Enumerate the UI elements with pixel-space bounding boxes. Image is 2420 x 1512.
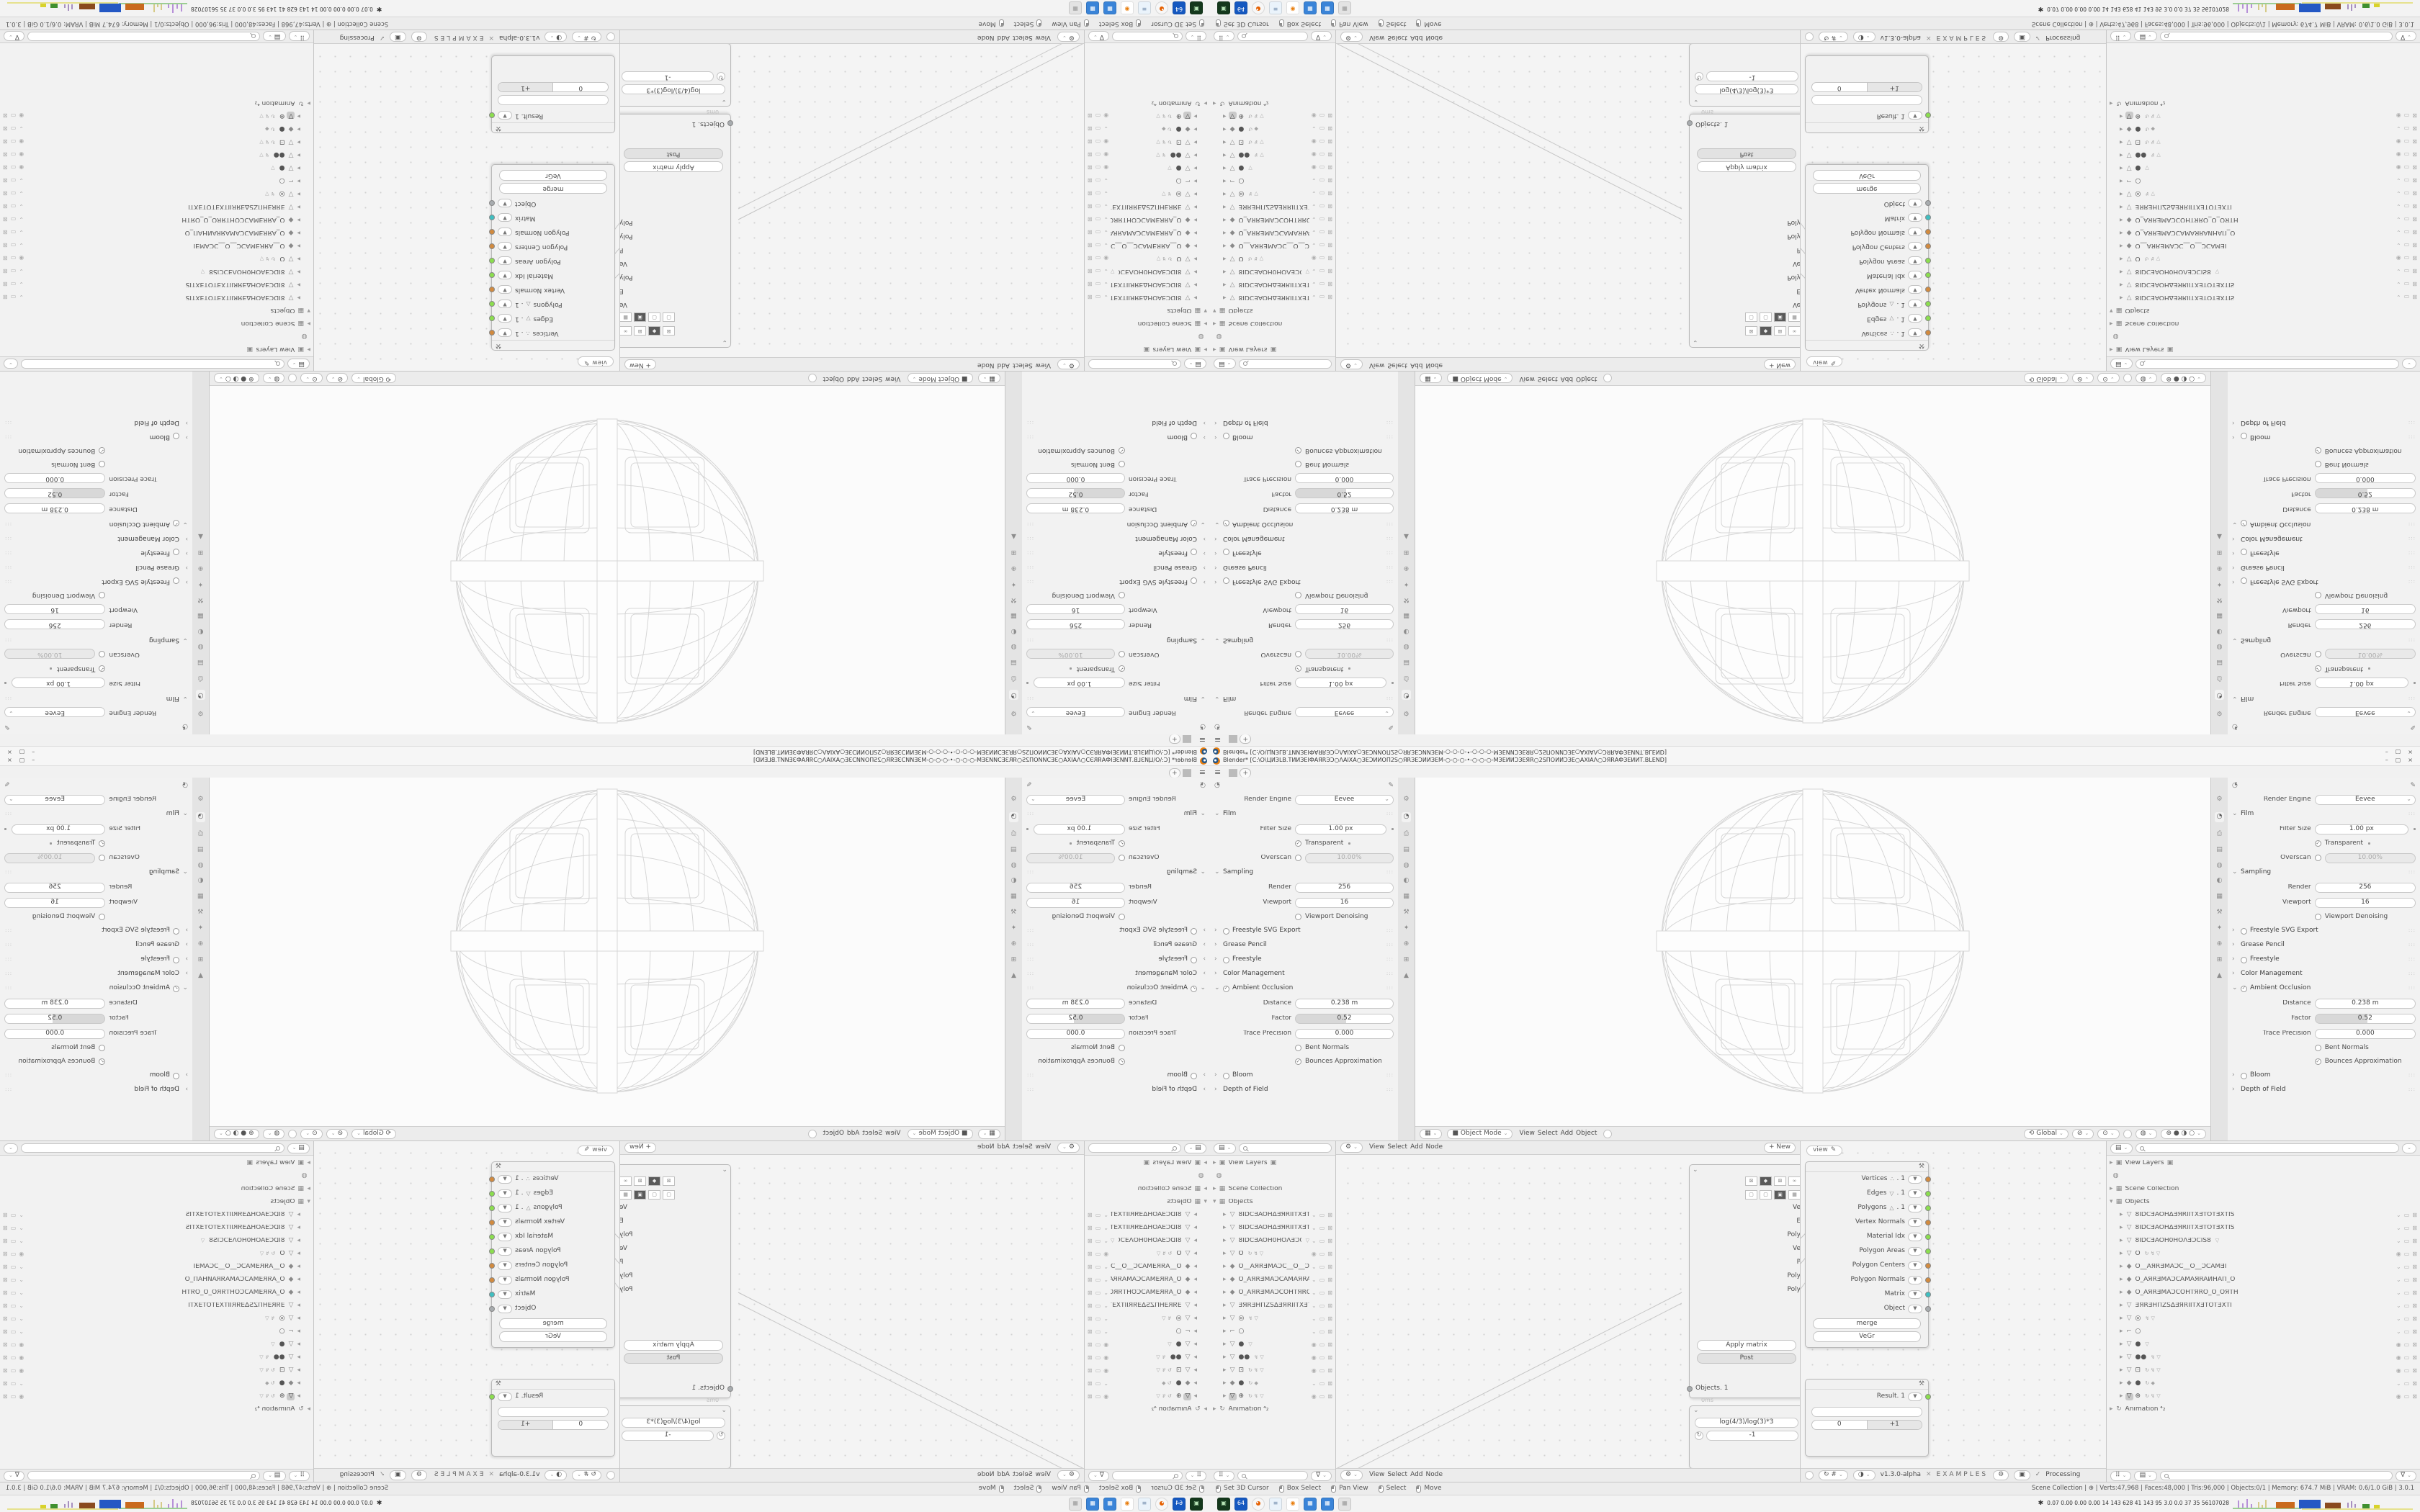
expand-arrow-icon[interactable]: ▸ xyxy=(297,1290,300,1297)
outliner-row[interactable]: ▸▽8IDCƎAOHΔƎЯRIITXƎTOTƎXTIS⌄▭⊠ xyxy=(0,290,313,303)
monitor-toggle-icon[interactable]: ▭ xyxy=(11,1342,17,1349)
addon-settings-button[interactable]: ⚙ xyxy=(1993,32,2009,42)
pin-icon[interactable]: ✎ xyxy=(1388,783,1394,790)
field-filter-size[interactable]: 1.00 px xyxy=(1034,678,1125,688)
properties-tab-object-icon[interactable]: ▦ xyxy=(1403,611,1410,618)
properties-tab-physics-icon[interactable]: ⊕ xyxy=(2217,564,2223,571)
render-toggle-icon[interactable]: ⊠ xyxy=(3,1381,8,1387)
outliner-row[interactable]: ▸▽8IDCƎAOHΔƎЯRIITXƎTOTƎXTIS⌄▭⊠ xyxy=(2107,1222,2420,1235)
outliner-row[interactable]: ▸▽●▽◉▭⊠ xyxy=(1085,161,1210,174)
objects-input-socket[interactable] xyxy=(1687,120,1693,126)
formula-node[interactable]: ⌄ log(4/3)/log(3)*3 ↻ -1 xyxy=(1689,1405,1801,1469)
editor-type-button[interactable]: ▦⌄ xyxy=(978,374,1000,384)
addon-settings-button[interactable]: ⚙ xyxy=(411,1470,427,1480)
output-socket[interactable] xyxy=(1925,229,1931,235)
section-header-grease-pencil[interactable]: ›Grease Pencil::: xyxy=(1214,559,1394,574)
output-socket[interactable] xyxy=(1925,272,1931,278)
monitor-toggle-icon[interactable]: ▭ xyxy=(2404,1290,2410,1297)
checkbox-viewport-denoising[interactable] xyxy=(1295,914,1301,920)
new-tab-button[interactable]: + xyxy=(1169,768,1180,778)
outliner-row[interactable]: ▸▽8IDCƎAOH0HOΛƎƆCIS8▽⌄▭⊠ xyxy=(1085,1235,1210,1248)
outliner-row[interactable]: ▸▽8IDCƎAOHΔƎЯRIITXƎTOTƎXTIS⌄▭⊠ xyxy=(2107,290,2420,303)
render-toggle-icon[interactable]: ⊠ xyxy=(1088,255,1093,261)
checkbox-bounces-approximation[interactable] xyxy=(99,1058,105,1065)
filter-button[interactable]: ∇⌄ xyxy=(1088,32,1109,42)
expand-arrow-icon[interactable]: ▸ xyxy=(1223,1367,1227,1374)
monitor-toggle-icon[interactable]: ▭ xyxy=(11,1303,17,1310)
expand-arrow-icon[interactable]: ▸ xyxy=(1193,1367,1197,1374)
minimize-button[interactable]: – xyxy=(32,748,35,755)
socket-dropdown[interactable]: ▼ xyxy=(1908,1218,1922,1227)
snap-button[interactable]: ⊘⌄ xyxy=(2072,1129,2094,1139)
outliner-row[interactable]: ▸▽⊕↻ ↯ ▽◉▭⊠ xyxy=(2107,109,2420,122)
expand-arrow-icon[interactable]: ▸ xyxy=(1193,150,1197,158)
visibility-toggle-icon[interactable]: ⌄ xyxy=(1312,1277,1317,1284)
section-header-freestyle-svg-export[interactable]: ›Freestyle SVG Export::: xyxy=(1214,924,1394,938)
visibility-toggle-icon[interactable]: ⌄ xyxy=(1103,1264,1108,1271)
footer-shading-button[interactable]: ◑⌄ xyxy=(1853,32,1875,42)
menu-view[interactable]: View xyxy=(1034,34,1052,41)
holdout-toggle[interactable]: ⊠ xyxy=(1774,1176,1786,1186)
render-toggle-icon[interactable]: ⊠ xyxy=(2412,1303,2417,1310)
render-toggle-icon[interactable]: ⊠ xyxy=(2412,125,2417,132)
section-toggle[interactable] xyxy=(1223,549,1229,556)
render-toggle-icon[interactable]: ⊠ xyxy=(1088,1342,1093,1349)
expand-arrow-icon[interactable]: ▾ xyxy=(307,1199,310,1206)
visibility-toggle-icon[interactable]: ⌄ xyxy=(1312,1225,1317,1232)
output-socket[interactable] xyxy=(489,215,495,220)
output-socket[interactable] xyxy=(1925,1292,1931,1297)
section-toggle[interactable] xyxy=(1191,986,1197,992)
step-zero-button[interactable]: 0 xyxy=(554,83,609,91)
refresh-icon[interactable]: ↻ xyxy=(1695,72,1703,81)
section-header-freestyle-svg-export[interactable]: ›Freestyle SVG Export::: xyxy=(1026,924,1206,938)
outliner-search-input[interactable] xyxy=(2136,1143,2399,1153)
monitor-toggle-icon[interactable]: ▭ xyxy=(1095,1381,1101,1387)
render-toggle-icon[interactable]: ⊠ xyxy=(1088,190,1093,197)
properties-tab-modifier-icon[interactable]: ⚒ xyxy=(197,595,203,603)
field-render-engine[interactable]: Eevee xyxy=(2315,795,2416,805)
gizmo-toggle[interactable] xyxy=(2123,374,2132,383)
render-toggle-icon[interactable]: ⊠ xyxy=(1088,164,1093,171)
field-render-engine[interactable]: Eevee xyxy=(4,708,105,718)
node-editor-right[interactable]: view✎ ⚒ Vertices∴. 1▼Edges▽. 1▼Polygons△… xyxy=(1801,1141,2107,1482)
render-toggle-icon[interactable]: ⊠ xyxy=(2412,1225,2417,1232)
socket-dropdown[interactable]: ▼ xyxy=(1908,314,1922,323)
geometry-output-node[interactable]: ⚒ Vertices∴. 1▼Edges▽. 1▼Polygons△. 1▼Ve… xyxy=(1805,164,1929,351)
render-toggle-icon[interactable]: ⊠ xyxy=(1327,125,1332,132)
outliner-row[interactable]: ▸◆●↻ ◆⌄▭⊠ xyxy=(1085,1377,1210,1390)
expand-arrow-icon[interactable]: ▸ xyxy=(2120,1393,2123,1400)
visibility-toggle-icon[interactable]: ⌄ xyxy=(1103,1303,1108,1310)
monitor-toggle-icon[interactable]: ▭ xyxy=(1095,151,1101,158)
expand-arrow-icon[interactable]: ▸ xyxy=(1193,176,1197,184)
expand-arrow-icon[interactable]: ▸ xyxy=(1193,254,1197,261)
menu-select[interactable]: Select xyxy=(1011,1143,1034,1151)
render-toggle-icon[interactable]: ⊠ xyxy=(1088,1251,1093,1258)
viewport-extra-button[interactable] xyxy=(808,1130,817,1138)
outliner-row[interactable]: ▸▽8IDCƎAOHΔƎЯRIITXƎTOTƎXTIS⌄▭⊠ xyxy=(1085,1222,1210,1235)
outliner-row[interactable]: ▸◆●↻ ◆⌄▭⊠ xyxy=(1210,1377,1335,1390)
render-toggle-icon[interactable]: ⊠ xyxy=(2412,1238,2417,1245)
menu-add[interactable]: Add xyxy=(1409,34,1424,41)
visibility-toggle-icon[interactable]: ⌄ xyxy=(1312,177,1317,184)
properties-tab-constraints-icon[interactable]: ⊞ xyxy=(198,548,204,555)
objects-input-socket[interactable] xyxy=(727,1386,733,1392)
mode-c-button[interactable]: ▣ xyxy=(1774,312,1786,322)
outliner-row[interactable]: ▸▽8IDCƎAOHΔƎЯRIITXƎTOTƎXTIS⌄▭⊠ xyxy=(2107,277,2420,290)
formula-field[interactable]: log(4/3)/log(3)*3 xyxy=(1695,1418,1798,1428)
visibility-toggle-icon[interactable]: ⌄ xyxy=(1103,1316,1108,1323)
expand-arrow-icon[interactable]: ▸ xyxy=(2120,293,2123,300)
socket-dropdown[interactable]: ▼ xyxy=(498,271,512,279)
menu-node[interactable]: Node xyxy=(976,361,996,369)
expand-arrow-icon[interactable]: ▸ xyxy=(2120,1290,2123,1297)
outliner-row[interactable]: ▸◆O__AЯRƎMAƆC__O__ƆCAMƎI⌄▭⊠ xyxy=(1210,238,1335,251)
monitor-toggle-icon[interactable]: ▭ xyxy=(1095,112,1101,119)
expand-arrow-icon[interactable]: ▸ xyxy=(2120,1238,2123,1245)
expand-arrow-icon[interactable]: ▸ xyxy=(1223,1277,1227,1284)
render-toggle-icon[interactable]: ⊠ xyxy=(3,229,8,235)
render-toggle-icon[interactable]: ⊠ xyxy=(1088,125,1093,132)
outliner-row[interactable]: ▸⌐○⌄▭⊠ xyxy=(0,1326,313,1338)
expand-arrow-icon[interactable]: ▸ xyxy=(1204,1160,1207,1167)
outliner-row[interactable]: ▸▽●▽◉▭⊠ xyxy=(2107,161,2420,174)
outliner-row[interactable]: ▾▦Objects xyxy=(0,1196,313,1209)
outliner-row[interactable]: ▸⌐○⌄▭⊠ xyxy=(1085,1326,1210,1338)
visibility-toggle-icon[interactable]: ⌄ xyxy=(19,268,24,274)
visibility-toggle-icon[interactable]: ⌄ xyxy=(1103,203,1108,210)
field-distance[interactable]: 0.238 m xyxy=(1295,999,1394,1009)
notepad-icon[interactable]: ≡ xyxy=(1138,2,1151,15)
expand-arrow-icon[interactable]: ▸ xyxy=(297,1315,300,1323)
render-toggle-icon[interactable]: ⊠ xyxy=(1327,229,1332,235)
outliner-row[interactable]: ▸▽O↻ ↯ ▽◉▭⊠ xyxy=(2107,1248,2420,1261)
monitor-toggle-icon[interactable]: ▭ xyxy=(1095,203,1101,210)
node-editor-right[interactable]: view✎ ⚒ Vertices∴. 1▼Edges▽. 1▼Polygons△… xyxy=(1801,30,2107,371)
visibility-toggle-icon[interactable]: ◉ xyxy=(19,1394,24,1400)
outliner-row[interactable]: ▸▽ƎЯRƎHПZSΔƎЯRIITXƎTOTƎXTI⌄▭⊠ xyxy=(1210,1300,1335,1313)
visibility-toggle-icon[interactable]: ◉ xyxy=(19,1368,24,1374)
new-node-tree-button[interactable]: + New xyxy=(624,359,656,369)
section-header-color-management[interactable]: ›Color Management::: xyxy=(1214,531,1394,545)
render-toggle-icon[interactable]: ⊠ xyxy=(1327,1277,1332,1284)
visibility-toggle-icon[interactable]: ⌄ xyxy=(2396,1381,2401,1387)
section-header-ambient-occlusion[interactable]: ⌄Ambient Occlusion::: xyxy=(1214,981,1394,996)
monitor-toggle-icon[interactable]: ▭ xyxy=(1319,203,1325,210)
outliner-row[interactable]: ▸▽ƎЯRƎHПZSΔƎЯRIITXƎTOTƎXTI⌄▭⊠ xyxy=(1085,199,1210,212)
section-header-freestyle[interactable]: ›Freestyle::: xyxy=(2232,953,2416,967)
visibility-toggle-icon[interactable]: ◉ xyxy=(2396,151,2401,158)
outliner-row[interactable]: ▸▽O↻ ↯ ▽◉▭⊠ xyxy=(0,1248,313,1261)
properties-tab-constraints-icon[interactable]: ⊞ xyxy=(2217,957,2223,964)
properties-tab-object-icon[interactable]: ▦ xyxy=(2216,894,2223,901)
render-toggle-icon[interactable]: ⊠ xyxy=(1327,1355,1332,1362)
monitor-toggle-icon[interactable]: ▭ xyxy=(2404,151,2410,158)
checkbox-bent-normals[interactable] xyxy=(2315,1045,2321,1051)
properties-tab-particles-icon[interactable]: ✦ xyxy=(1404,580,1410,587)
field-render-engine[interactable]: Eevee xyxy=(1026,795,1125,805)
output-socket[interactable] xyxy=(1925,1248,1931,1254)
monitor-toggle-icon[interactable]: ▭ xyxy=(11,138,17,145)
hamburger-menu-icon[interactable]: ≡ xyxy=(1214,734,1221,744)
menu-object[interactable]: Object xyxy=(822,375,846,382)
calculator2-icon[interactable]: ▦ xyxy=(1086,2,1099,15)
render-toggle-icon[interactable]: ⊠ xyxy=(1088,1329,1093,1336)
objects-input-socket[interactable] xyxy=(727,120,733,126)
view-panel-tab[interactable]: view✎ xyxy=(578,1146,614,1156)
outliner-row[interactable]: ▸▽⊕↻ ↯ ▽◉▭⊠ xyxy=(0,109,313,122)
outliner-row[interactable]: ◍ xyxy=(1085,1170,1210,1183)
outliner-row[interactable]: ▸▽ƎЯRƎHПZSΔƎЯRIITXƎTOTƎXTI⌄▭⊠ xyxy=(1210,199,1335,212)
menu-node[interactable]: Node xyxy=(1425,1143,1445,1151)
field-render-engine[interactable]: Eevee xyxy=(1295,795,1394,805)
filter-display-button[interactable]: ⠿⌄ xyxy=(1214,32,1234,42)
render-toggle-icon[interactable]: ⊠ xyxy=(2412,1394,2417,1400)
render-toggle-icon[interactable]: ⊠ xyxy=(3,1290,8,1297)
outliner-row[interactable]: ▸▽8IDCƎAOHΔƎЯRIITXƎTOTƎXTIS⌄▭⊠ xyxy=(1210,1222,1335,1235)
expand-arrow-icon[interactable]: ▸ xyxy=(307,319,310,326)
render-toggle-icon[interactable]: ⊠ xyxy=(2412,190,2417,197)
node-editor-left[interactable]: ⚙⌄ ViewSelectAddNode + New ⌄ ⊠◆ ⊠∞ ▢▢▣▦ … xyxy=(619,1141,1084,1482)
properties-tab-physics-icon[interactable]: ⊕ xyxy=(1404,564,1410,571)
section-header-film[interactable]: ⌄Film::: xyxy=(1214,807,1394,822)
monitor-toggle-icon[interactable]: ▭ xyxy=(11,1316,17,1323)
expand-arrow-icon[interactable]: ▸ xyxy=(1223,202,1227,210)
expand-arrow-icon[interactable]: ▸ xyxy=(2110,1186,2113,1193)
output-socket[interactable] xyxy=(1925,1220,1931,1225)
field-factor[interactable]: 0.52 xyxy=(2315,1014,2416,1024)
orientation-dropdown[interactable]: ⟲ Global⌄ xyxy=(351,374,396,384)
workspace-tab[interactable] xyxy=(1186,735,1187,743)
properties-tab-physics-icon[interactable]: ⊕ xyxy=(1404,941,1410,948)
exclude-toggle[interactable]: ⊠ xyxy=(1745,326,1757,336)
socket-dropdown[interactable]: ▼ xyxy=(1908,285,1922,294)
expand-arrow-icon[interactable]: ▸ xyxy=(1213,99,1216,106)
field-render[interactable]: 256 xyxy=(4,883,105,893)
output-socket[interactable] xyxy=(1925,200,1931,206)
visibility-toggle-icon[interactable]: ⌄ xyxy=(1103,125,1108,132)
menu-add[interactable]: Add xyxy=(995,34,1010,41)
monitor-toggle-icon[interactable]: ▭ xyxy=(11,229,17,235)
properties-tab-render-icon[interactable]: ◔ xyxy=(1009,812,1019,822)
visibility-toggle-icon[interactable]: ⌄ xyxy=(2396,1264,2401,1271)
section-toggle[interactable] xyxy=(2241,549,2247,556)
field-trace-precision[interactable]: 0.000 xyxy=(2315,474,2416,484)
render-toggle-icon[interactable]: ⊠ xyxy=(1327,242,1332,248)
section-toggle[interactable] xyxy=(173,957,179,963)
visibility-toggle-icon[interactable]: ⌄ xyxy=(2396,1329,2401,1336)
expand-arrow-icon[interactable]: ▸ xyxy=(1193,138,1197,145)
visibility-toggle-icon[interactable]: ◉ xyxy=(1103,1355,1108,1362)
monitor-toggle-icon[interactable]: ▭ xyxy=(11,242,17,248)
menu-add[interactable]: Add xyxy=(846,375,861,382)
output-socket[interactable] xyxy=(1925,1191,1931,1197)
visibility-toggle-icon[interactable]: ⌄ xyxy=(19,1264,24,1271)
visibility-toggle-icon[interactable]: ⌄ xyxy=(2396,268,2401,274)
editor-type-button[interactable]: ⚙⌄ xyxy=(1057,359,1080,369)
monitor-toggle-icon[interactable]: ▭ xyxy=(1095,190,1101,197)
outliner-row[interactable]: ▸▽●▽◉▭⊠ xyxy=(2107,1338,2420,1351)
mode-a-button[interactable]: ▢ xyxy=(663,1190,675,1200)
outliner-search-input[interactable] xyxy=(1112,32,1183,41)
monitor-toggle-icon[interactable]: ▭ xyxy=(11,1264,17,1271)
section-header-depth-of-field[interactable]: ›Depth of Field::: xyxy=(1026,415,1206,429)
render-toggle-icon[interactable]: ⊠ xyxy=(1327,138,1332,145)
refresh-icon[interactable]: ↻ xyxy=(717,72,725,81)
output-socket[interactable] xyxy=(1925,1205,1931,1211)
visibility-toggle-icon[interactable]: ⌄ xyxy=(1103,1290,1108,1297)
section-header-freestyle[interactable]: ›Freestyle::: xyxy=(4,953,188,967)
field-trace-precision[interactable]: 0.000 xyxy=(1295,474,1394,484)
outliner-row[interactable]: ▸▽O↻ ↯ ▽◉▭⊠ xyxy=(1085,251,1210,264)
expand-arrow-icon[interactable]: ▸ xyxy=(2120,1264,2123,1271)
checkbox-viewport-denoising[interactable] xyxy=(1119,914,1125,920)
socket-dropdown[interactable]: ▼ xyxy=(1908,1204,1922,1212)
render-toggle-icon[interactable]: ⊠ xyxy=(3,216,8,222)
outliner-row[interactable]: ▸↻Animation ⁴₂ xyxy=(0,96,313,109)
render-toggle-icon[interactable]: ⊠ xyxy=(3,1342,8,1349)
socket-dropdown[interactable]: ▼ xyxy=(1908,1233,1922,1241)
outliner-row[interactable]: ▸▣View Layers▣ xyxy=(2107,1157,2420,1170)
exclude-toggle[interactable]: ⊠ xyxy=(1745,1176,1757,1186)
render-toggle-icon[interactable]: ⊠ xyxy=(3,190,8,197)
toggle-overscan[interactable] xyxy=(1119,855,1125,861)
properties-tab-particles-icon[interactable]: ✦ xyxy=(2217,580,2223,587)
properties-tab-data-icon[interactable]: ▲ xyxy=(1011,973,1016,980)
render-toggle-icon[interactable]: ⊠ xyxy=(1088,294,1093,300)
section-toggle[interactable] xyxy=(1223,578,1229,585)
expand-arrow-icon[interactable]: ▸ xyxy=(1223,1393,1227,1400)
menu-select[interactable]: Select xyxy=(1386,361,1409,369)
render-toggle-icon[interactable]: ⊠ xyxy=(3,281,8,287)
capture-app-icon[interactable]: ▣ xyxy=(1190,1498,1203,1511)
monitor-toggle-icon[interactable]: ▭ xyxy=(1319,177,1325,184)
hamburger-menu-icon[interactable]: ≡ xyxy=(1214,768,1221,778)
step-plus-one-button[interactable]: +1 xyxy=(1867,83,1922,91)
section-header-bloom[interactable]: ›Bloom::: xyxy=(1214,429,1394,444)
overlays-button[interactable]: ◍⌄ xyxy=(263,374,285,384)
checkbox-bent-normals[interactable] xyxy=(1119,461,1125,467)
visibility-toggle-icon[interactable]: ⌄ xyxy=(2396,229,2401,235)
expand-arrow-icon[interactable]: ▸ xyxy=(1223,112,1227,119)
checkbox-viewport-denoising[interactable] xyxy=(1295,592,1301,598)
expand-arrow-icon[interactable]: ▸ xyxy=(2110,1406,2113,1413)
properties-tab-particles-icon[interactable]: ✦ xyxy=(198,580,204,587)
socket-dropdown[interactable]: ▼ xyxy=(498,242,512,251)
properties-tab-object-icon[interactable]: ▦ xyxy=(1010,611,1017,618)
section-header-color-management[interactable]: ›Color Management::: xyxy=(1214,967,1394,981)
section-header-color-management[interactable]: ›Color Management::: xyxy=(4,531,188,545)
workspace-tab[interactable] xyxy=(1187,735,1188,743)
properties-tab-render-icon[interactable]: ◔ xyxy=(2215,812,2225,822)
expand-arrow-icon[interactable]: ▸ xyxy=(297,202,300,210)
visibility-toggle-icon[interactable]: ⌄ xyxy=(1312,1381,1317,1387)
expand-arrow-icon[interactable]: ▸ xyxy=(2120,1315,2123,1323)
monitor-toggle-icon[interactable]: ▭ xyxy=(2404,216,2410,222)
outliner-row[interactable]: ▸▽O↻ ↯ ▽◉▭⊠ xyxy=(1210,251,1335,264)
outliner-row[interactable]: ▸▽●●↯ ▽◉▭⊠ xyxy=(1210,1351,1335,1364)
menu-select[interactable]: Select xyxy=(1011,1471,1034,1478)
expand-arrow-icon[interactable]: ▸ xyxy=(2120,125,2123,132)
outliner-row[interactable]: ▸◆O_AЯRƎMAƆCAMAЯRAИHAП_O⌄▭⊠ xyxy=(0,1274,313,1287)
section-toggle[interactable] xyxy=(1191,521,1197,527)
monitor-toggle-icon[interactable]: ▭ xyxy=(1319,1225,1325,1232)
expand-arrow-icon[interactable]: ▸ xyxy=(1193,293,1197,300)
properties-tab-world-icon[interactable]: ◐ xyxy=(1404,627,1410,634)
outliner-row[interactable]: ▾▦Objects xyxy=(1210,1196,1335,1209)
render-toggle-icon[interactable]: ⊠ xyxy=(1088,138,1093,145)
outliner-row[interactable]: ▸◆●↻ ◆⌄▭⊠ xyxy=(2107,1377,2420,1390)
expand-arrow-icon[interactable]: ▸ xyxy=(1193,125,1197,132)
node-editor-right[interactable]: view✎ ⚒ Vertices∴. 1▼Edges▽. 1▼Polygons△… xyxy=(313,1141,619,1482)
visibility-toggle-icon[interactable]: ⌄ xyxy=(2396,177,2401,184)
blender-icon[interactable]: ◉ xyxy=(1121,1498,1134,1511)
mode-dropdown[interactable]: ■ Object Mode⌄ xyxy=(1447,1129,1512,1139)
render-toggle-icon[interactable]: ⊠ xyxy=(1327,294,1332,300)
monitor-toggle-icon[interactable]: ▭ xyxy=(1095,1264,1101,1271)
properties-tab-constraints-icon[interactable]: ⊞ xyxy=(1404,957,1410,964)
section-header-freestyle-svg-export[interactable]: ›Freestyle SVG Export::: xyxy=(2232,574,2416,588)
output-socket[interactable] xyxy=(489,1248,495,1254)
monitor-toggle-icon[interactable]: ▭ xyxy=(2404,255,2410,261)
field-factor[interactable]: 0.52 xyxy=(4,1014,105,1024)
monitor-toggle-icon[interactable]: ▭ xyxy=(1095,177,1101,184)
formula-node[interactable]: ⌄ log(4/3)/log(3)*3 ↻ -1 xyxy=(619,1405,731,1469)
visibility-toggle-icon[interactable]: ⌄ xyxy=(2396,203,2401,210)
outliner-row[interactable]: ▾▦Objects xyxy=(2107,303,2420,316)
field-viewport[interactable]: 16 xyxy=(1295,605,1394,615)
viewport-3d[interactable]: ▦⌄ ■ Object Mode⌄ ViewSelectAddObject ⟲ … xyxy=(1415,778,2211,1140)
field-overscan[interactable]: 10.00% xyxy=(2325,853,2416,863)
field-distance[interactable]: 0.238 m xyxy=(1026,504,1125,514)
monitor-toggle-icon[interactable]: ▭ xyxy=(2404,1277,2410,1284)
outliner-row[interactable]: ▸▽8IDCƎAOHΔƎЯRIITXƎTOTƎXTIS⌄▭⊠ xyxy=(1085,277,1210,290)
menu-select[interactable]: Select xyxy=(861,375,884,382)
outliner-row[interactable]: ▸◆O_AЯRƎMAƆCAMAЯRAИHAП_O⌄▭⊠ xyxy=(0,225,313,238)
checkbox-transparent[interactable] xyxy=(99,840,105,847)
visibility-toggle-icon[interactable]: ◉ xyxy=(19,164,24,171)
expand-arrow-icon[interactable]: ▾ xyxy=(2110,1199,2113,1206)
outliner-row[interactable]: ▸◆O_AЯRƎMAƆCOHTЯRO_O_OЯTH⌄▭⊠ xyxy=(1085,1287,1210,1300)
outliner-row[interactable]: ▸▽8IDCƎAOH0HOΛƎƆCIS8▽⌄▭⊠ xyxy=(2107,264,2420,277)
monitor-toggle-icon[interactable]: ▭ xyxy=(2404,268,2410,274)
visibility-toggle-icon[interactable]: ⌄ xyxy=(19,229,24,235)
outliner-row[interactable]: ▸◆O_AЯRƎMAƆCAMAЯRAИHAП_O⌄▭⊠ xyxy=(1085,1274,1210,1287)
link-toggle[interactable]: ∞ xyxy=(619,326,632,336)
outliner-row[interactable]: ▸◆O__AЯRƎMAƆC__O__ƆCAMƎI⌄▭⊠ xyxy=(2107,1261,2420,1274)
menu-node[interactable]: Node xyxy=(1425,34,1445,41)
expand-arrow-icon[interactable]: ▸ xyxy=(2120,150,2123,158)
outliner-row[interactable]: ▸▽◎↯ ▽⌄▭⊠ xyxy=(0,1313,313,1326)
render-toggle-icon[interactable]: ⊠ xyxy=(1088,112,1093,119)
checkbox-viewport-denoising[interactable] xyxy=(99,914,105,920)
outliner-row[interactable]: ▸▽8IDCƎAOHΔƎЯRIITXƎTOTƎXTIS⌄▭⊠ xyxy=(0,1209,313,1222)
node-editor-left[interactable]: ⚙⌄ ViewSelectAddNode + New ⌄ ⊠◆ ⊠∞ ▢▢▣▦ … xyxy=(1336,30,1801,371)
result-value-field[interactable] xyxy=(1811,95,1922,105)
menu-add[interactable]: Add xyxy=(995,1143,1010,1151)
expand-arrow-icon[interactable]: ▸ xyxy=(1193,1393,1197,1400)
monitor-toggle-icon[interactable]: ▭ xyxy=(2404,1342,2410,1349)
expand-arrow-icon[interactable]: ▸ xyxy=(1223,125,1227,132)
visibility-toggle-icon[interactable]: ◉ xyxy=(19,138,24,145)
menu-node[interactable]: Node xyxy=(976,1471,996,1478)
section-header-sampling[interactable]: ⌄Sampling::: xyxy=(1026,865,1206,880)
socket-dropdown[interactable]: ▼ xyxy=(498,1218,512,1227)
visibility-toggle-icon[interactable]: ⌄ xyxy=(1312,268,1317,274)
expand-arrow-icon[interactable]: ▸ xyxy=(307,1186,310,1193)
expand-arrow-icon[interactable]: ▸ xyxy=(1223,1315,1227,1323)
